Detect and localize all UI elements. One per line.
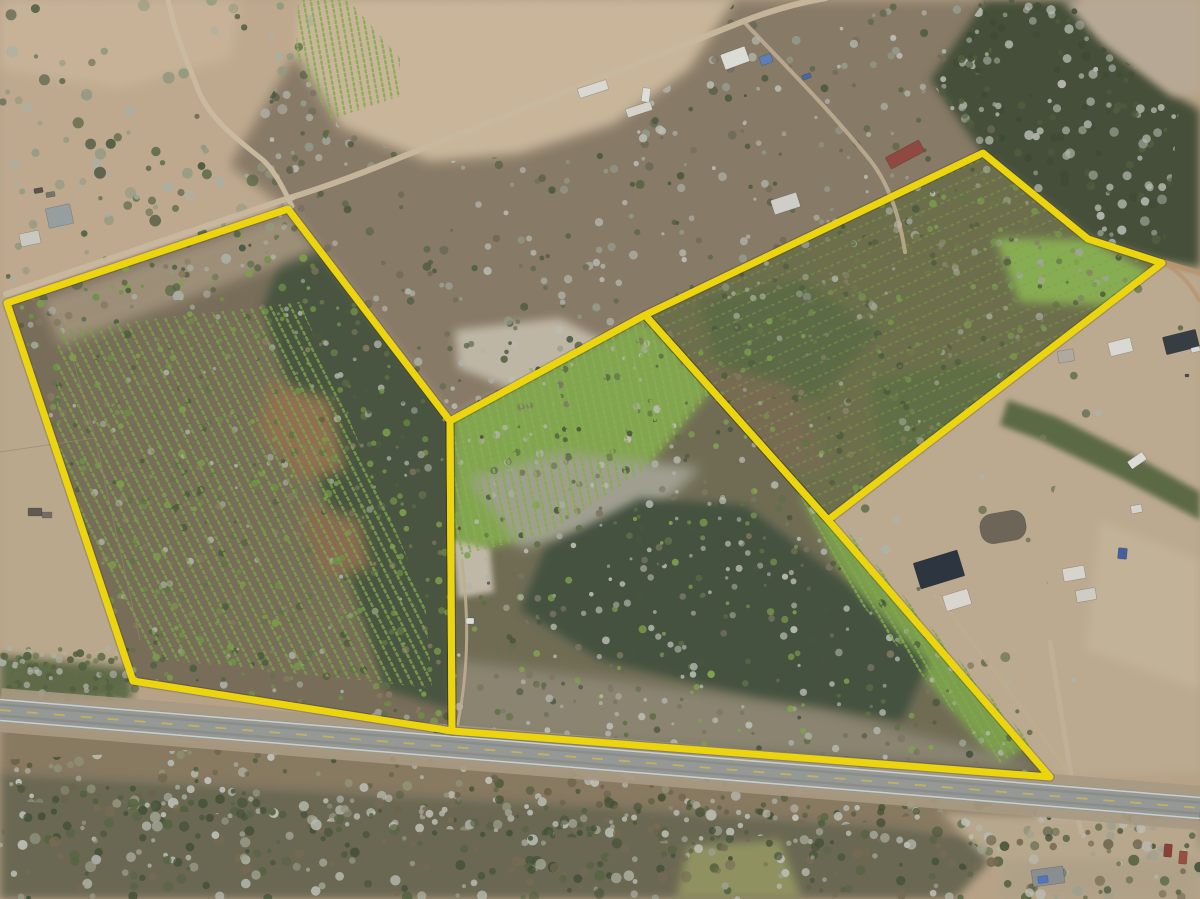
grain-light-rect [0,0,1200,899]
aerial-photo [0,0,1200,899]
photo-grain-overlay [0,0,1200,899]
aerial-photo-svg [0,0,1200,899]
